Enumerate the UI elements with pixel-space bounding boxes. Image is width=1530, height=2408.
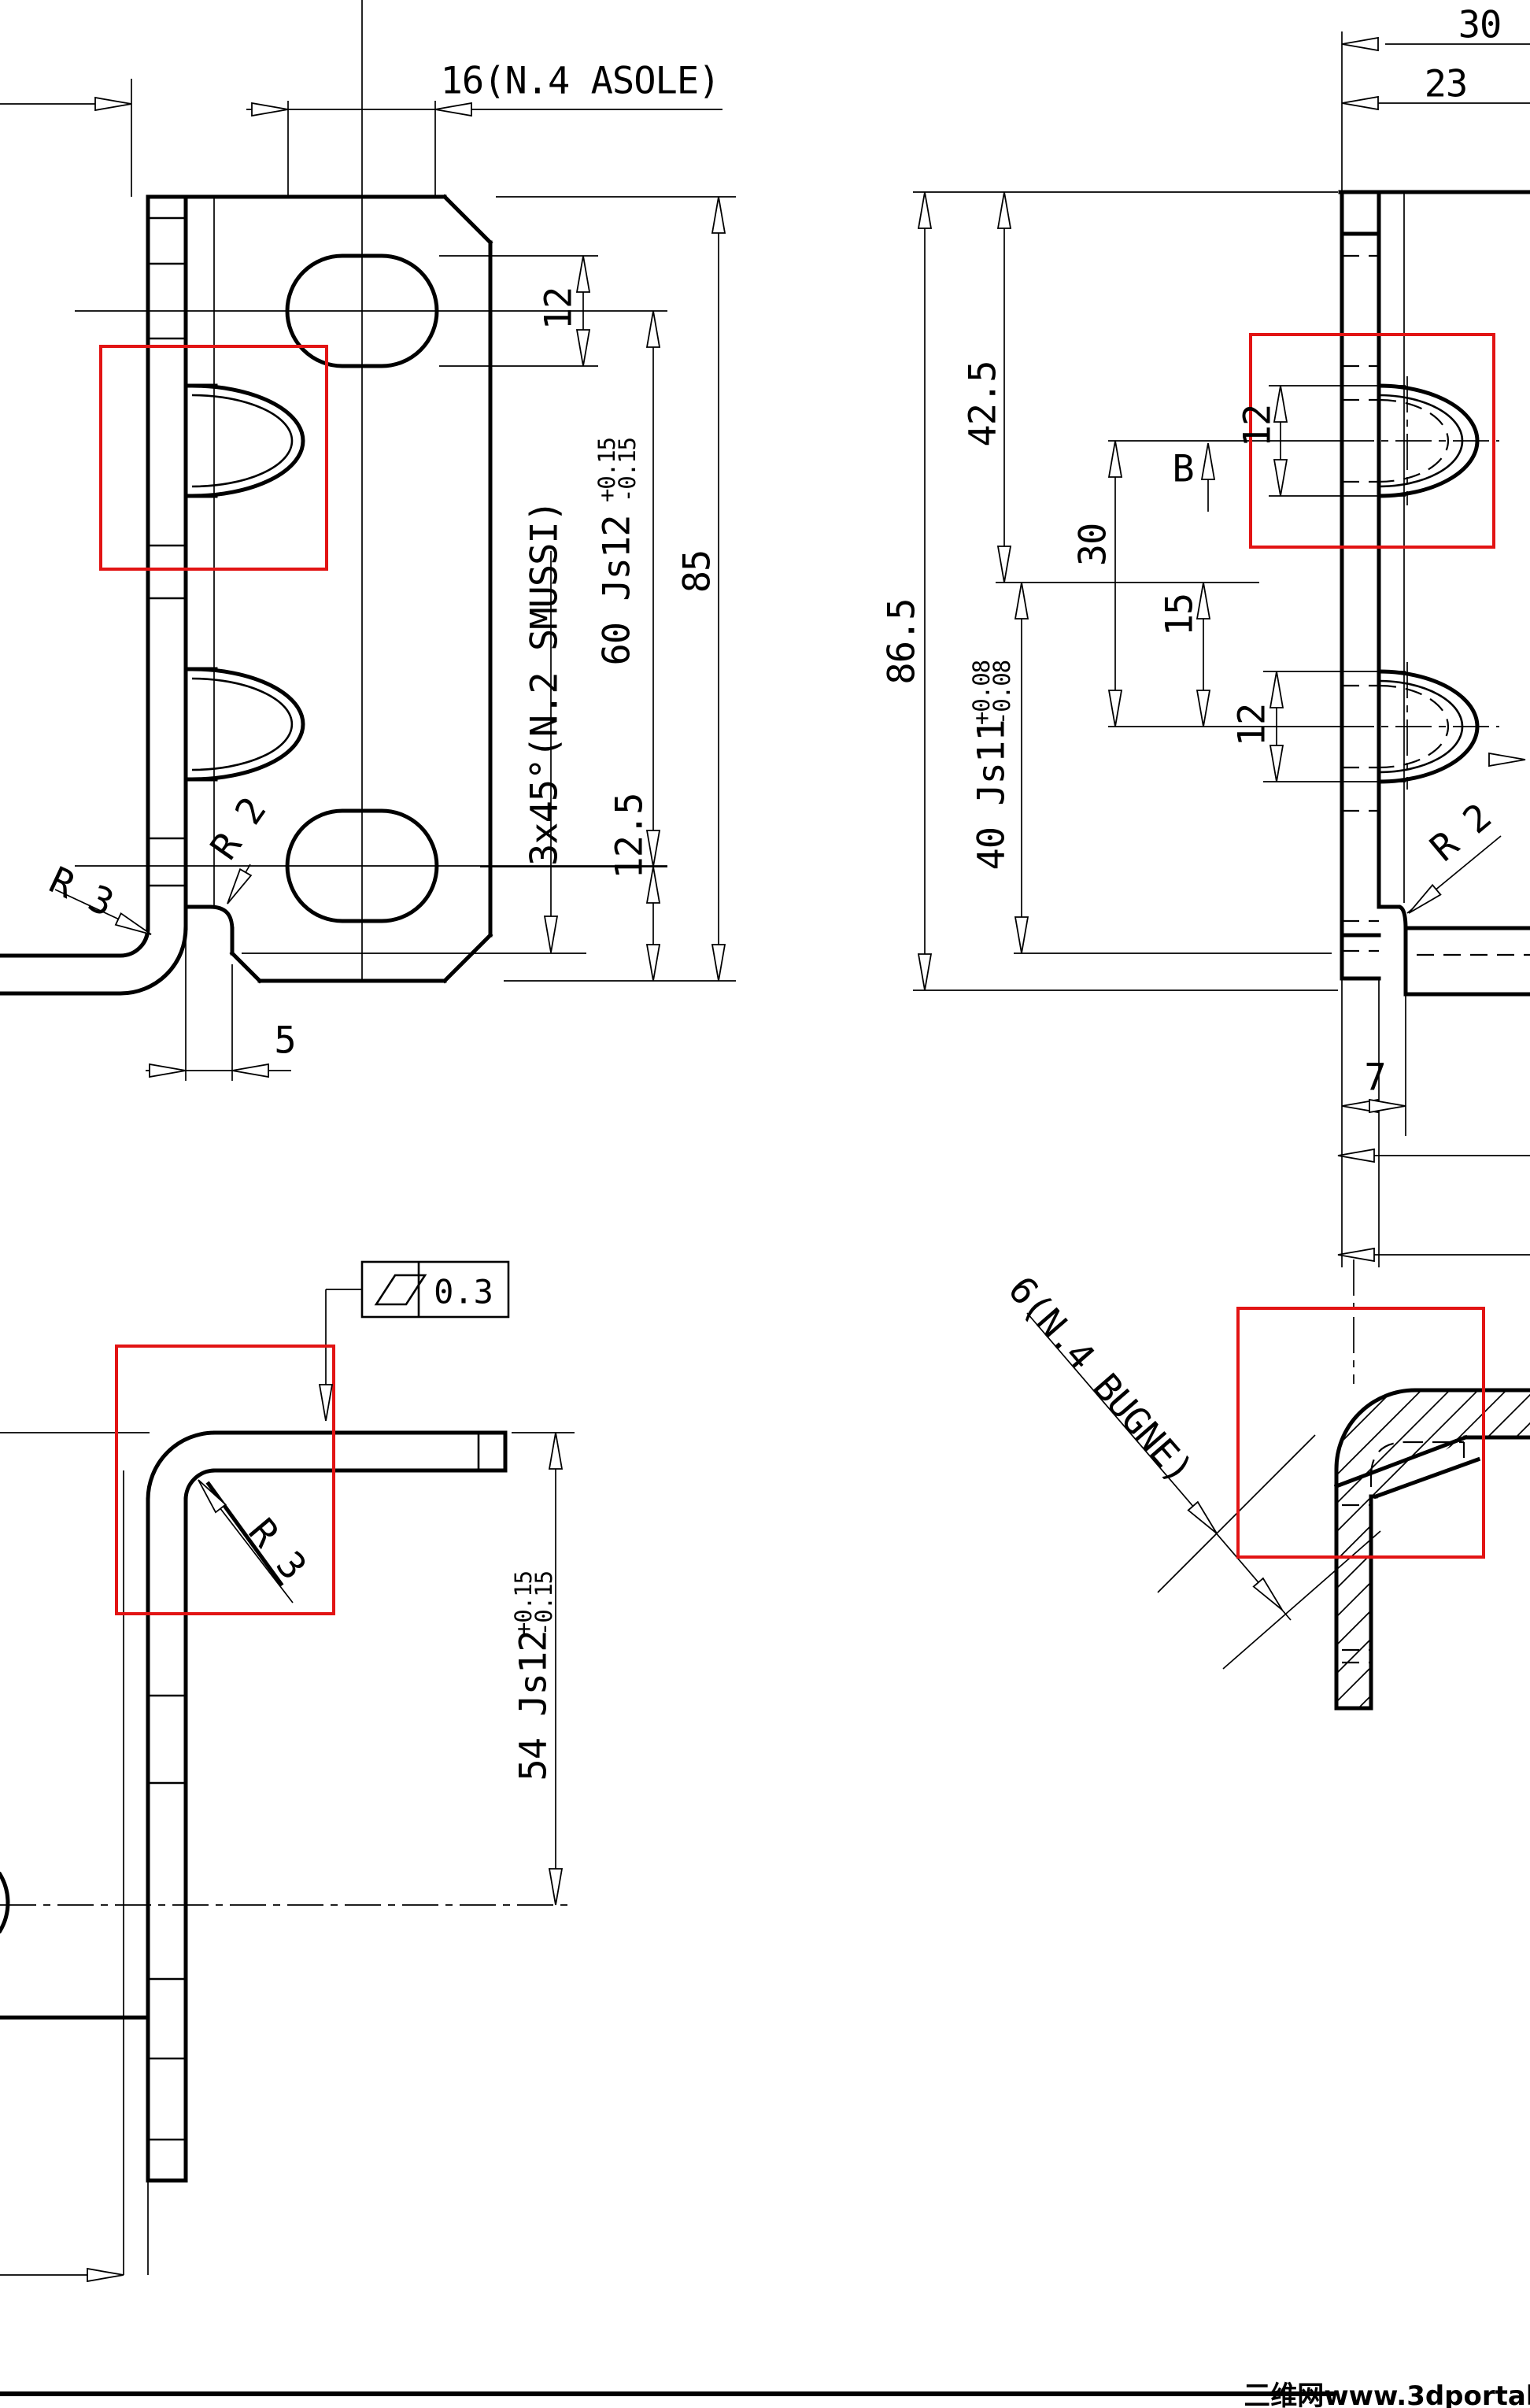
arrowhead-icon: [1202, 443, 1214, 479]
dim-flange-width: 5: [274, 1019, 295, 1063]
arrowhead-icon: [712, 945, 725, 981]
arrowhead-icon: [1254, 1578, 1287, 1614]
hatch-line: [1426, 1299, 1530, 1811]
dim-side-r2: R 2: [1422, 796, 1499, 871]
arrowhead-icon: [95, 98, 131, 110]
arrowhead-icon: [1342, 38, 1378, 50]
arrowhead-icon: [194, 1476, 226, 1512]
profile-dimensions: [0, 1289, 575, 2275]
dim-radius-r2: R 2: [202, 790, 275, 868]
arrowhead-icon: [435, 103, 471, 116]
dim-radius-r3: R 3: [42, 859, 119, 925]
arrowhead-icon: [545, 916, 557, 952]
hatch-line: [1398, 1299, 1530, 1811]
arrowhead-icon: [712, 197, 725, 233]
dim-leg-height: 54 Js12: [512, 1630, 556, 1781]
side-view: 30 23 86.5 42.5 40 Js11 +0.08 -0.08 30 1…: [881, 4, 1530, 1268]
side-center-ext: [1108, 441, 1338, 727]
arrowhead-icon: [1197, 690, 1210, 727]
arrowhead-icon: [1274, 386, 1287, 422]
dim-leg-tol-minus: -0.15: [530, 1571, 557, 1636]
dim-slot-spacing-tol-minus: -0.15: [614, 438, 641, 502]
dim-slot-note: 16(N.4 ASOLE): [441, 60, 720, 103]
arrowhead-icon: [1369, 1100, 1406, 1112]
dim-center-offset: 42.5: [962, 361, 1005, 446]
arrowhead-icon: [1270, 671, 1283, 708]
front-center-lines: [75, 0, 667, 981]
arrowhead-icon: [998, 192, 1011, 228]
detail-ref-label: B: [1172, 448, 1193, 491]
hinge-drawing-svg: 16(N.4 ASOLE) 12 85 60 Js12 +0.15 -0.15 …: [0, 0, 1530, 2408]
arrowhead-icon: [1338, 1248, 1374, 1261]
arrowhead-icon: [918, 954, 931, 990]
arrowhead-icon: [252, 103, 288, 116]
dim-top-len2: 23: [1425, 63, 1468, 106]
dim-side-flange-width: 7: [1364, 1056, 1385, 1100]
detail-view: 6(N.4 BUGNE): [944, 1259, 1530, 1811]
highlight-box-detail-boss: [1238, 1308, 1484, 1557]
dim-boss-dia-top: 12: [1236, 405, 1280, 448]
arrowhead-icon: [1188, 1502, 1221, 1537]
arrowhead-icon: [549, 1433, 562, 1469]
dim-slot-width: 12: [538, 287, 581, 331]
dim-chamfer-note: 3x45°(N.2 SMUSSI): [523, 501, 567, 866]
arrowhead-icon: [647, 945, 660, 981]
flatness-value: 0.3: [434, 1273, 493, 1311]
dim-bottom-offset: 12.5: [608, 793, 652, 878]
hatch-line: [1171, 1299, 1530, 1811]
arrowhead-icon: [549, 1869, 562, 1905]
profile-slot-arc: [0, 1874, 8, 1931]
side-boss-bottom: [1379, 662, 1477, 790]
front-boss-bottom: [187, 669, 303, 779]
arrowhead-icon: [577, 256, 589, 292]
profile-strip-ticks: [148, 1696, 186, 2140]
side-center-lines: [1338, 441, 1499, 727]
dim-slot-spacing: 60 Js12: [596, 515, 639, 665]
front-plate-outline: [148, 197, 490, 981]
dim-boss-span: 40 Js11: [970, 719, 1014, 870]
arrowhead-icon: [1015, 917, 1028, 953]
arrowhead-icon: [918, 192, 931, 228]
hatch-line: [973, 1299, 1484, 1811]
hatch-line: [1058, 1299, 1530, 1811]
watermark: 三维网www.3dportal.cn: [1244, 2380, 1530, 2408]
arrowhead-icon: [1015, 583, 1028, 619]
hatch-line: [1086, 1299, 1530, 1811]
side-outline: [1340, 192, 1530, 994]
dim-top-len: 30: [1458, 4, 1502, 47]
dim-total-height: 86.5: [881, 598, 924, 684]
arrowhead-icon: [1109, 690, 1122, 727]
hatch-line: [944, 1299, 1456, 1811]
hatch-line: [1284, 1299, 1530, 1811]
dim-boss-dia-bottom: 12: [1231, 704, 1274, 747]
dimension-arrowheads: [87, 38, 1525, 2281]
hatch-line: [1256, 1299, 1530, 1811]
arrowhead-icon: [998, 546, 1011, 583]
front-strip-ticks: [148, 218, 186, 886]
dim-boss-spacing: 30: [1072, 523, 1115, 567]
dim-boss-note: 6(N.4 BUGNE): [1000, 1268, 1201, 1491]
hatch-line: [1454, 1299, 1530, 1811]
dim-plate-height: 85: [676, 550, 719, 594]
arrowhead-icon: [1489, 753, 1525, 766]
arrowhead-icon: [232, 1064, 268, 1077]
hatch-line: [1199, 1299, 1530, 1811]
engineering-drawing-canvas: 16(N.4 ASOLE) 12 85 60 Js12 +0.15 -0.15 …: [0, 0, 1530, 2408]
arrowhead-icon: [1342, 97, 1378, 109]
dim-boss-half: 15: [1159, 594, 1202, 637]
arrowhead-icon: [150, 1064, 186, 1077]
front-boss-top: [187, 386, 303, 496]
arrowhead-icon: [222, 869, 251, 907]
front-view: 16(N.4 ASOLE) 12 85 60 Js12 +0.15 -0.15 …: [0, 0, 736, 1081]
profile-view: 0.3 54 Js12 +0.15 -0.15 R 3: [0, 1262, 575, 2275]
arrowhead-icon: [1274, 460, 1287, 496]
dim-profile-r3: R 3: [240, 1511, 315, 1588]
dim-boss-span-tol-minus: -0.08: [989, 660, 1015, 725]
arrowhead-icon: [1405, 885, 1441, 918]
arrowhead-icon: [647, 311, 660, 347]
arrowhead-icon: [87, 2269, 124, 2281]
hatch-line: [1114, 1299, 1530, 1811]
arrowhead-icon: [577, 330, 589, 366]
detail-outline: [1336, 1390, 1530, 1708]
arrowhead-icon: [1270, 745, 1283, 782]
arrowhead-icon: [1109, 441, 1122, 477]
flatness-callout: 0.3: [362, 1262, 508, 1317]
hatch-line: [1313, 1299, 1530, 1811]
hatch-line: [1369, 1299, 1530, 1811]
arrowhead-icon: [320, 1385, 332, 1421]
arrowhead-icon: [1338, 1149, 1374, 1162]
